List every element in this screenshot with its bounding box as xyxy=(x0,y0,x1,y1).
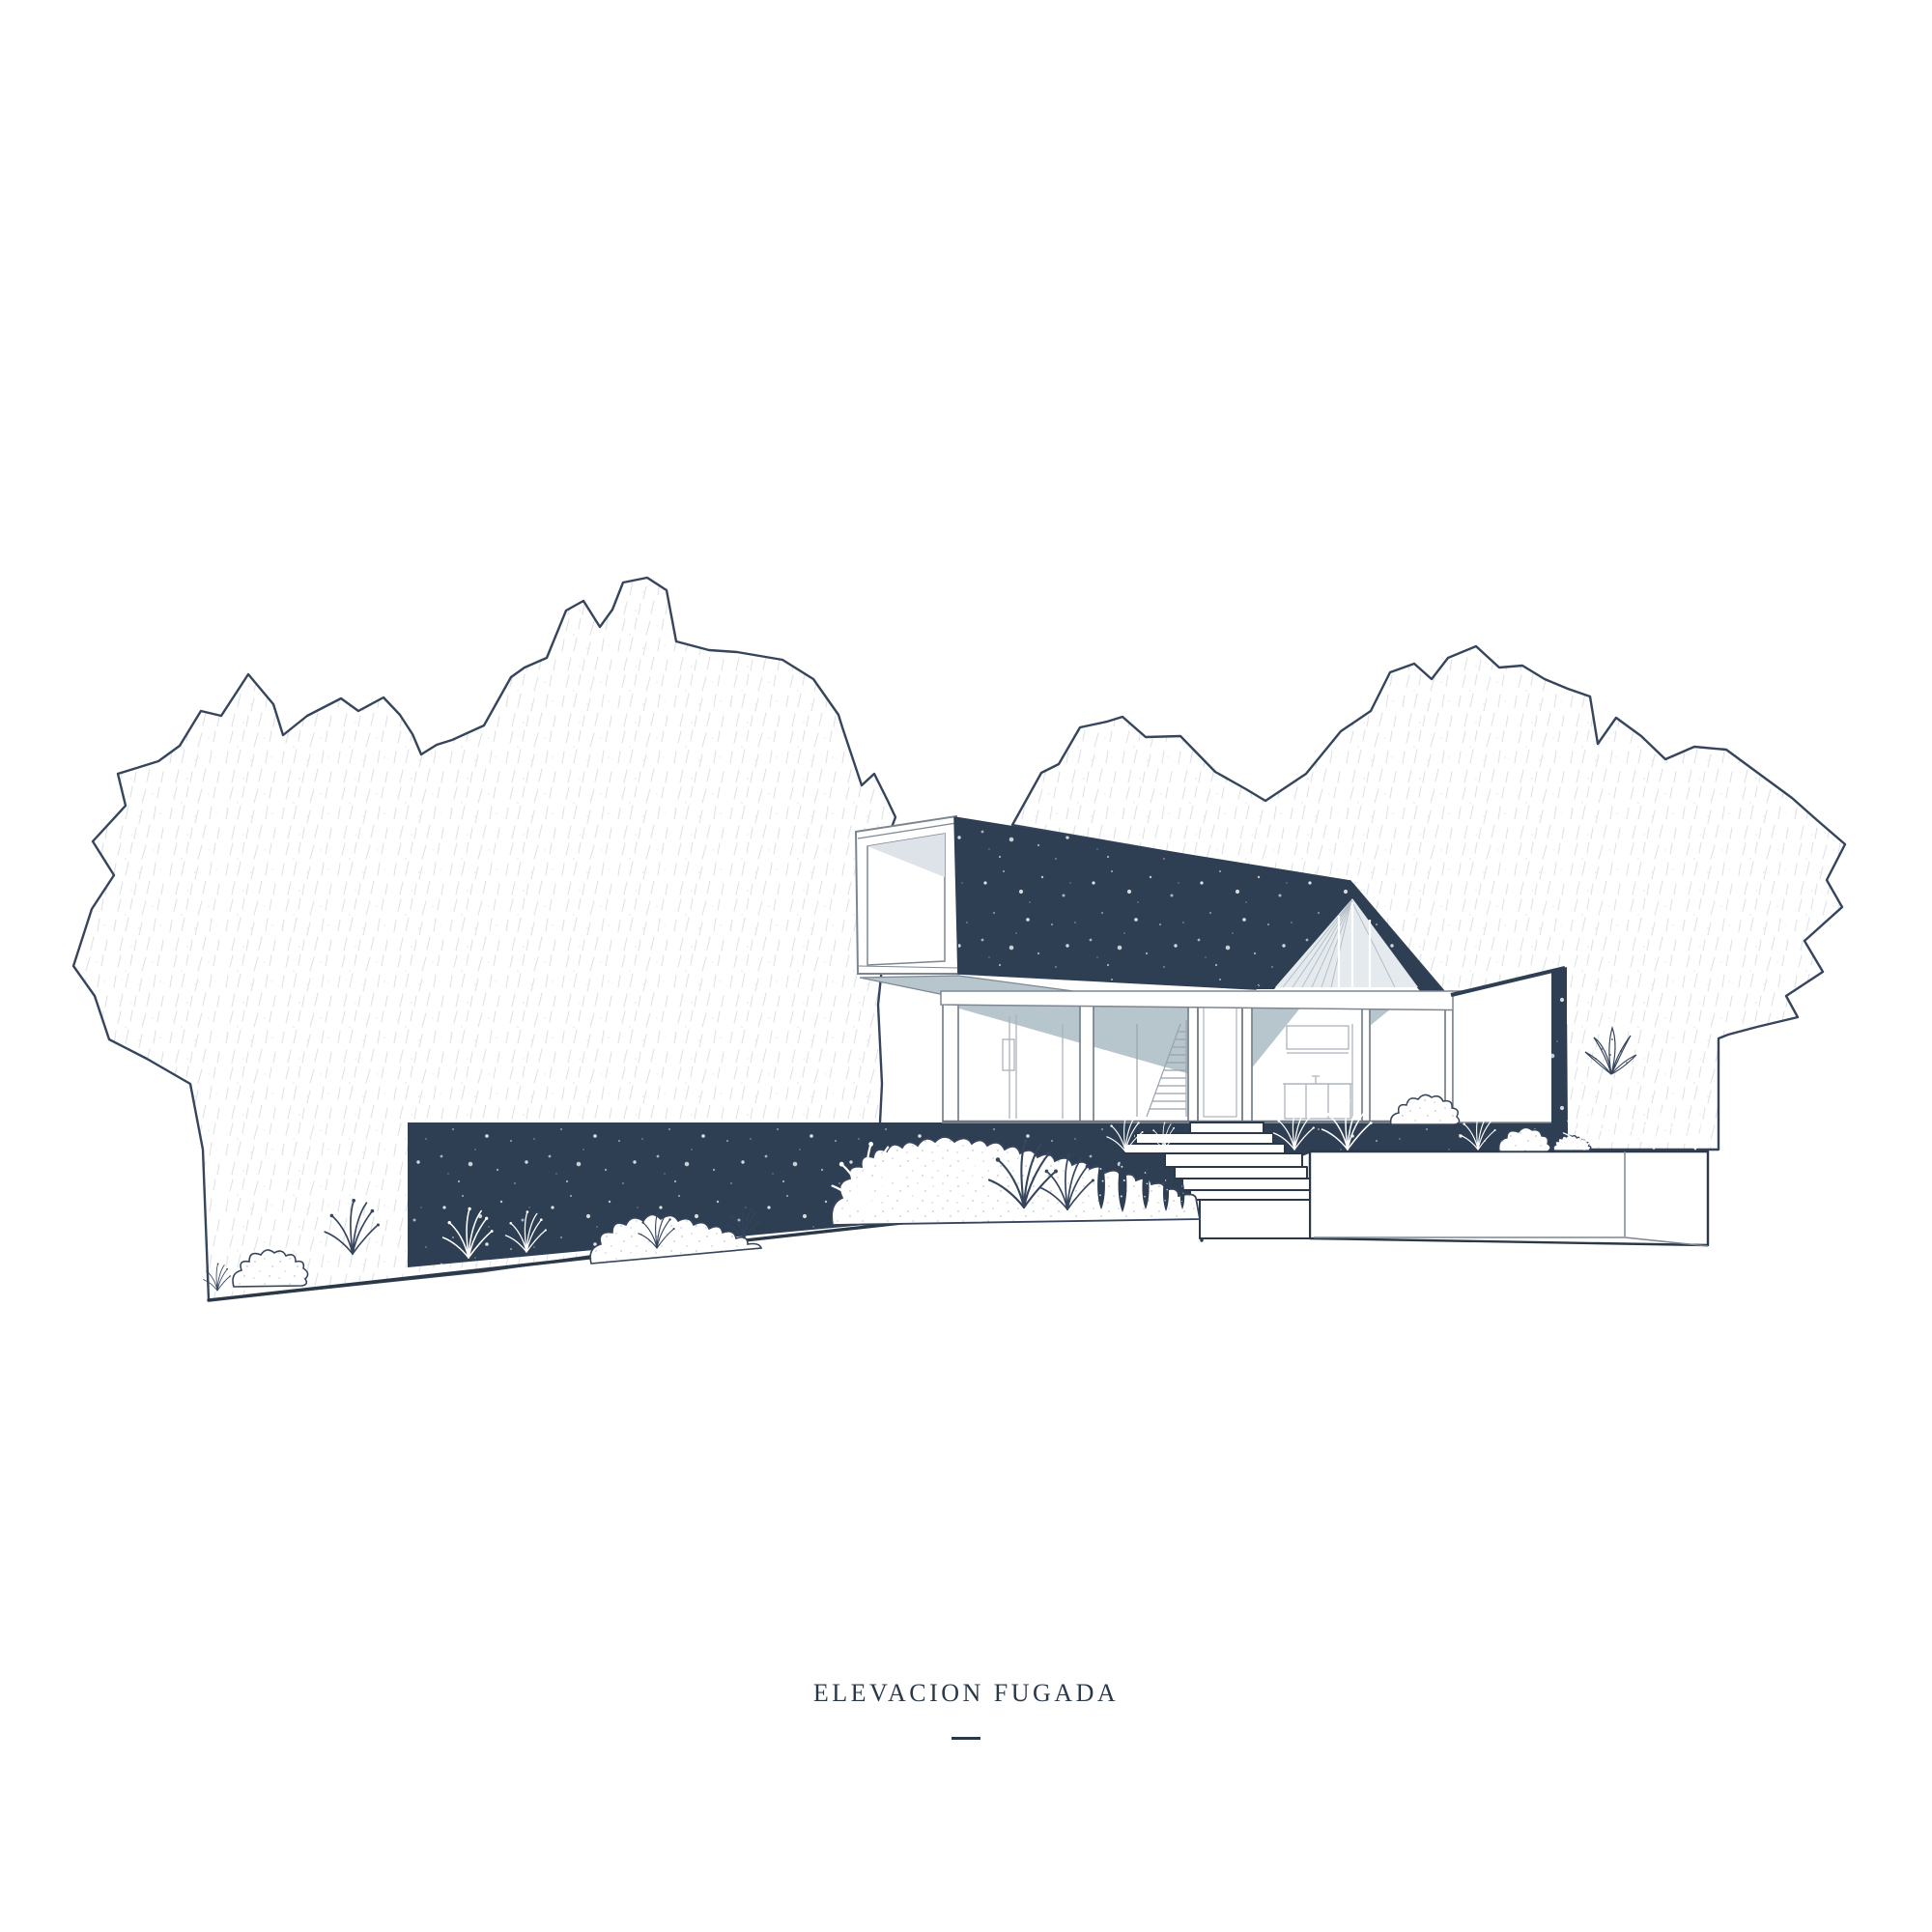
title-underline xyxy=(952,1737,980,1740)
glass-facade xyxy=(943,993,1453,1122)
drawing-title: ELEVACION FUGADA xyxy=(0,1679,1932,1708)
cantilever-volume xyxy=(856,816,958,974)
elevation-drawing xyxy=(0,0,1932,1932)
lower-terrace xyxy=(1310,1151,1708,1246)
elevation-sheet: ELEVACION FUGADA xyxy=(0,0,1932,1932)
entry-door xyxy=(1188,999,1252,1122)
